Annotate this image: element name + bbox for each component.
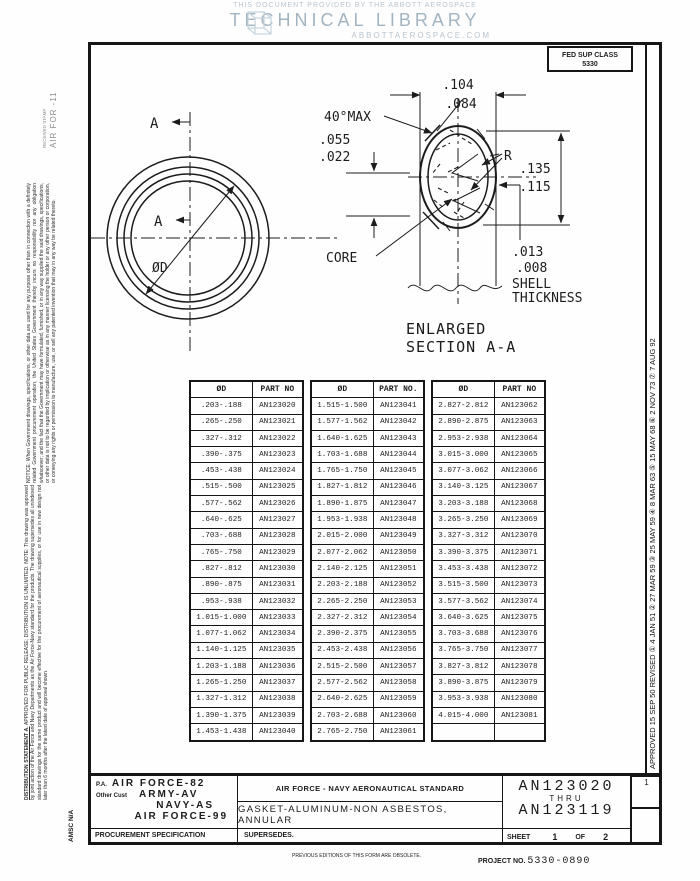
diameter-cell: 4.015-4.000 bbox=[432, 707, 494, 723]
of-label: OF bbox=[575, 834, 585, 841]
part-no-cell: AN123035 bbox=[252, 642, 303, 658]
table-row: 2.577-2.562AN123058 bbox=[311, 675, 424, 691]
part-table-group-1: ØDPART NO.203-.188AN123020.265-.250AN123… bbox=[189, 380, 304, 742]
diameter-cell: .765-.750 bbox=[190, 544, 252, 560]
diameter-cell: 2.140-2.125 bbox=[311, 561, 373, 577]
table-row: .827-.812AN123030 bbox=[190, 561, 303, 577]
table-row: .765-.750AN123029 bbox=[190, 544, 303, 560]
part-no-cell: AN123037 bbox=[252, 675, 303, 691]
table-header-row: ØDPART NO bbox=[190, 381, 303, 398]
diameter-cell: 2.890-2.875 bbox=[432, 414, 494, 430]
table-row: 1.890-1.875AN123047 bbox=[311, 496, 424, 512]
part-no-cell: AN123028 bbox=[252, 528, 303, 544]
table-row: .640-.625AN123027 bbox=[190, 512, 303, 528]
table-row: 1.953-1.938AN123048 bbox=[311, 512, 424, 528]
table-row: 1.077-1.062AN123034 bbox=[190, 626, 303, 642]
diameter-label: ØD bbox=[152, 261, 168, 276]
table-row: 3.077-3.062AN123066 bbox=[432, 463, 545, 479]
part-no-cell: AN123042 bbox=[373, 414, 424, 430]
table-row: 2.265-2.250AN123053 bbox=[311, 593, 424, 609]
table-row: 2.327-2.312AN123054 bbox=[311, 610, 424, 626]
part-table-group-3: ØDPART NO2.827-2.812AN1230622.890-2.875A… bbox=[431, 380, 546, 742]
part-no-cell: AN123077 bbox=[494, 642, 545, 658]
part-no-cell: AN123075 bbox=[494, 610, 545, 626]
part-no-cell: AN123064 bbox=[494, 430, 545, 446]
part-number-table: ØDPART NO.203-.188AN123020.265-.250AN123… bbox=[189, 380, 546, 742]
diameter-cell: 2.390-2.375 bbox=[311, 626, 373, 642]
part-no-cell: AN123063 bbox=[494, 414, 545, 430]
part-no-cell: AN123081 bbox=[494, 707, 545, 723]
table-row: 3.453-3.438AN123072 bbox=[432, 561, 545, 577]
other-cust-label: Other Cust bbox=[96, 793, 127, 799]
previous-editions-note: PREVIOUS EDITIONS OF THIS FORM ARE OBSOL… bbox=[292, 853, 421, 859]
received-stamp-small: RECEIVED STAMP bbox=[40, 53, 49, 148]
part-no-cell: AN123026 bbox=[252, 496, 303, 512]
table-row: 1.140-1.125AN123035 bbox=[190, 642, 303, 658]
table-row: 1.390-1.375AN123039 bbox=[190, 707, 303, 723]
diameter-cell: 1.515-1.500 bbox=[311, 398, 373, 414]
part-no-cell: AN123031 bbox=[252, 577, 303, 593]
table-row: 1.327-1.312AN123038 bbox=[190, 691, 303, 707]
amsc-label: AMSC N/A bbox=[68, 772, 75, 842]
part-no-cell: AN123054 bbox=[373, 610, 424, 626]
table-row: 3.827-3.812AN123078 bbox=[432, 659, 545, 675]
dim-angle: 40°MAX bbox=[324, 110, 371, 125]
table-row: 3.327-3.312AN123070 bbox=[432, 528, 545, 544]
table-row: .203-.188AN123020 bbox=[190, 398, 303, 414]
cube-logo-icon bbox=[245, 6, 275, 40]
diameter-cell: 2.765-2.750 bbox=[311, 724, 373, 741]
part-no-header: PART NO bbox=[494, 381, 545, 398]
received-stamp: RECEIVED STAMP AIR FOR -11 bbox=[40, 53, 58, 148]
table-row: 4.015-4.000AN123081 bbox=[432, 707, 545, 723]
part-range-cell: AN123020 THRU AN123119 bbox=[503, 776, 631, 829]
table-row: 1.015-1.000AN123033 bbox=[190, 610, 303, 626]
dim-right-min: .115 bbox=[519, 180, 550, 195]
part-no-cell: AN123022 bbox=[252, 430, 303, 446]
diameter-cell: 1.953-1.938 bbox=[311, 512, 373, 528]
table-row: .327-.312AN123022 bbox=[190, 430, 303, 446]
drawing-title-cell: GASKET-ALUMINUM-NON ASBESTOS, ANNULAR bbox=[238, 802, 503, 829]
part-no-cell: AN123060 bbox=[373, 707, 424, 723]
diameter-cell: 1.765-1.750 bbox=[311, 463, 373, 479]
table-row: 2.890-2.875AN123063 bbox=[432, 414, 545, 430]
diameter-cell: 3.953-3.938 bbox=[432, 691, 494, 707]
part-no-cell: AN123065 bbox=[494, 447, 545, 463]
dim-right-max: .135 bbox=[519, 162, 550, 177]
diameter-cell: .327-.312 bbox=[190, 430, 252, 446]
table-row: 2.515-2.500AN123057 bbox=[311, 659, 424, 675]
table-row: 3.765-3.750AN123077 bbox=[432, 642, 545, 658]
project-value: 5330-0890 bbox=[527, 856, 590, 867]
part-no-cell: AN123056 bbox=[373, 642, 424, 658]
diameter-cell: 1.890-1.875 bbox=[311, 496, 373, 512]
table-row: 3.890-3.875AN123079 bbox=[432, 675, 545, 691]
distribution-heading: DISTRIBUTION STATEMENT A. bbox=[24, 726, 30, 800]
part-no-cell bbox=[494, 724, 545, 741]
gasket-front-view: A A ØD bbox=[91, 112, 340, 352]
diameter-cell: 3.515-3.500 bbox=[432, 577, 494, 593]
diameter-cell: 1.390-1.375 bbox=[190, 707, 252, 723]
dim-left-max: .055 bbox=[319, 133, 350, 148]
table-row: 3.140-3.125AN123067 bbox=[432, 479, 545, 495]
diameter-cell: 3.703-3.688 bbox=[432, 626, 494, 642]
part-no-cell: AN123068 bbox=[494, 496, 545, 512]
dim-shell-max: .013 bbox=[512, 245, 543, 260]
part-no-cell: AN123039 bbox=[252, 707, 303, 723]
part-table-group-2: ØDPART NO.1.515-1.500AN1230411.577-1.562… bbox=[310, 380, 425, 742]
part-no-cell: AN123057 bbox=[373, 659, 424, 675]
diameter-cell: 1.827-1.812 bbox=[311, 479, 373, 495]
table-row: 3.577-3.562AN123074 bbox=[432, 593, 545, 609]
diameter-cell: .203-.188 bbox=[190, 398, 252, 414]
diameter-cell: 3.327-3.312 bbox=[432, 528, 494, 544]
caption-section: SECTION A-A bbox=[406, 338, 516, 356]
part-no-cell: AN123053 bbox=[373, 593, 424, 609]
diameter-header: ØD bbox=[432, 381, 494, 398]
table-row: 3.953-3.938AN123080 bbox=[432, 691, 545, 707]
received-stamp-main: AIR FOR -11 bbox=[49, 53, 58, 148]
part-no-cell: AN123076 bbox=[494, 626, 545, 642]
part-no-cell: AN123052 bbox=[373, 577, 424, 593]
table-row: 3.515-3.500AN123073 bbox=[432, 577, 545, 593]
sheet-total: 2 bbox=[603, 832, 608, 842]
table-row: 3.703-3.688AN123076 bbox=[432, 626, 545, 642]
diameter-cell: 1.077-1.062 bbox=[190, 626, 252, 642]
diameter-cell: .453-.438 bbox=[190, 463, 252, 479]
section-a-top-label: A bbox=[150, 116, 159, 132]
part-no-cell: AN123069 bbox=[494, 512, 545, 528]
supersedes-cell: SUPERSEDES. bbox=[238, 829, 503, 845]
table-row: 2.140-2.125AN123051 bbox=[311, 561, 424, 577]
diameter-cell: 1.265-1.250 bbox=[190, 675, 252, 691]
revision-number-box: 1 bbox=[631, 776, 662, 808]
diameter-cell: 2.577-2.562 bbox=[311, 675, 373, 691]
diameter-header: ØD bbox=[190, 381, 252, 398]
other-cust-2: NAVY-AS bbox=[96, 800, 232, 811]
part-no-cell: AN123072 bbox=[494, 561, 545, 577]
diameter-cell: 2.703-2.688 bbox=[311, 707, 373, 723]
table-row: 2.953-2.938AN123064 bbox=[432, 430, 545, 446]
part-no-cell: AN123051 bbox=[373, 561, 424, 577]
project-label: PROJECT NO. bbox=[478, 858, 525, 865]
diameter-cell: 3.015-3.000 bbox=[432, 447, 494, 463]
table-row: 2.765-2.750AN123061 bbox=[311, 724, 424, 741]
diameter-cell: .640-.625 bbox=[190, 512, 252, 528]
table-row: 1.203-1.188AN123036 bbox=[190, 659, 303, 675]
part-no-cell: AN123046 bbox=[373, 479, 424, 495]
pa-label: P.A. bbox=[96, 782, 107, 788]
dim-top-min: .084 bbox=[445, 97, 476, 112]
diameter-cell: 2.827-2.812 bbox=[432, 398, 494, 414]
approval-revisions: APPROVED 15 SEP 50 REVISED ① 4 JAN 51 ② … bbox=[648, 47, 657, 769]
part-no-header: PART NO bbox=[252, 381, 303, 398]
table-row: 3.265-3.250AN123069 bbox=[432, 512, 545, 528]
table-row: .453-.438AN123024 bbox=[190, 463, 303, 479]
diameter-cell: 2.203-2.188 bbox=[311, 577, 373, 593]
diameter-cell: 1.327-1.312 bbox=[190, 691, 252, 707]
revision-empty-box bbox=[631, 808, 662, 845]
table-row: 1.703-1.688AN123044 bbox=[311, 447, 424, 463]
title-block: P.A. AIR FORCE-82 Other Cust ARMY-AV NAV… bbox=[88, 773, 662, 845]
table-row: .890-.875AN123031 bbox=[190, 577, 303, 593]
table-row: 3.015-3.000AN123065 bbox=[432, 447, 545, 463]
diameter-cell: 2.077-2.062 bbox=[311, 544, 373, 560]
diameter-cell: 3.390-3.375 bbox=[432, 544, 494, 560]
table-row: 1.265-1.250AN123037 bbox=[190, 675, 303, 691]
part-no-cell: AN123045 bbox=[373, 463, 424, 479]
table-row: .390-.375AN123023 bbox=[190, 447, 303, 463]
diameter-cell: 3.077-3.062 bbox=[432, 463, 494, 479]
table-row: .953-.938AN123032 bbox=[190, 593, 303, 609]
enlarged-section-view: .104 .084 40°MAX .055 .022 R .135 .115 bbox=[319, 78, 582, 356]
part-number-from: AN123020 bbox=[503, 779, 630, 794]
part-no-cell: AN123047 bbox=[373, 496, 424, 512]
diameter-cell: .890-.875 bbox=[190, 577, 252, 593]
part-no-cell: AN123066 bbox=[494, 463, 545, 479]
other-cust-1: ARMY-AV bbox=[139, 789, 198, 800]
procurement-spec-cell: PROCUREMENT SPECIFICATION bbox=[91, 829, 238, 845]
diameter-cell: 2.265-2.250 bbox=[311, 593, 373, 609]
diameter-cell: 2.453-2.438 bbox=[311, 642, 373, 658]
diameter-cell: 1.140-1.125 bbox=[190, 642, 252, 658]
shell-word1: SHELL bbox=[512, 277, 551, 292]
sheet-label: SHEET bbox=[503, 834, 530, 841]
part-no-cell: AN123073 bbox=[494, 577, 545, 593]
sheet-cell: SHEET 1 OF 2 bbox=[503, 829, 631, 845]
diameter-cell: 3.765-3.750 bbox=[432, 642, 494, 658]
diameter-cell: 2.515-2.500 bbox=[311, 659, 373, 675]
caption-enlarged: ENLARGED bbox=[406, 320, 486, 338]
part-no-cell: AN123038 bbox=[252, 691, 303, 707]
diameter-cell: .953-.938 bbox=[190, 593, 252, 609]
diameter-cell: .703-.688 bbox=[190, 528, 252, 544]
table-row: 1.765-1.750AN123045 bbox=[311, 463, 424, 479]
part-no-cell: AN123040 bbox=[252, 724, 303, 741]
part-no-cell: AN123020 bbox=[252, 398, 303, 414]
part-no-cell: AN123070 bbox=[494, 528, 545, 544]
part-no-cell: AN123058 bbox=[373, 675, 424, 691]
diameter-cell: 1.015-1.000 bbox=[190, 610, 252, 626]
part-no-cell: AN123036 bbox=[252, 659, 303, 675]
table-row: 2.703-2.688AN123060 bbox=[311, 707, 424, 723]
table-row: 1.453-1.438AN123040 bbox=[190, 724, 303, 741]
part-no-cell: AN123025 bbox=[252, 479, 303, 495]
dim-top-max: .104 bbox=[442, 78, 473, 93]
table-row: 1.515-1.500AN123041 bbox=[311, 398, 424, 414]
diameter-cell: 1.577-1.562 bbox=[311, 414, 373, 430]
diameter-cell: 1.453-1.438 bbox=[190, 724, 252, 741]
diameter-cell: .577-.562 bbox=[190, 496, 252, 512]
table-header-row: ØDPART NO. bbox=[311, 381, 424, 398]
document-page: THIS DOCUMENT PROVIDED BY THE ABBOTT AER… bbox=[0, 0, 700, 881]
part-no-cell: AN123074 bbox=[494, 593, 545, 609]
table-row: .515-.500AN123025 bbox=[190, 479, 303, 495]
project-number: PROJECT NO. 5330-0890 bbox=[478, 856, 590, 867]
part-no-cell: AN123080 bbox=[494, 691, 545, 707]
part-no-cell: AN123044 bbox=[373, 447, 424, 463]
part-no-cell: AN123041 bbox=[373, 398, 424, 414]
part-no-cell: AN123043 bbox=[373, 430, 424, 446]
break-line bbox=[408, 285, 502, 291]
distribution-statement: DISTRIBUTION STATEMENT A. APPROVED FOR P… bbox=[24, 485, 49, 800]
diameter-cell: 1.703-1.688 bbox=[311, 447, 373, 463]
table-row: .577-.562AN123026 bbox=[190, 496, 303, 512]
diameter-cell: 3.453-3.438 bbox=[432, 561, 494, 577]
table-row: 3.390-3.375AN123071 bbox=[432, 544, 545, 560]
table-row: 1.577-1.562AN123042 bbox=[311, 414, 424, 430]
part-no-cell: AN123067 bbox=[494, 479, 545, 495]
diameter-cell: 3.265-3.250 bbox=[432, 512, 494, 528]
standard-line-cell: AIR FORCE - NAVY AERONAUTICAL STANDARD bbox=[238, 776, 503, 802]
part-no-cell: AN123062 bbox=[494, 398, 545, 414]
diameter-cell: .390-.375 bbox=[190, 447, 252, 463]
part-no-cell: AN123049 bbox=[373, 528, 424, 544]
table-row: 1.827-1.812AN123046 bbox=[311, 479, 424, 495]
dim-left-min: .022 bbox=[319, 150, 350, 165]
table-row: 3.203-3.188AN123068 bbox=[432, 496, 545, 512]
table-header-row: ØDPART NO bbox=[432, 381, 545, 398]
part-no-cell: AN123059 bbox=[373, 691, 424, 707]
part-no-cell: AN123078 bbox=[494, 659, 545, 675]
government-notice: NOTICE: When Government drawings, specif… bbox=[26, 183, 57, 483]
sheet-number: 1 bbox=[552, 832, 557, 842]
part-no-cell: AN123021 bbox=[252, 414, 303, 430]
part-number-to: AN123119 bbox=[503, 803, 630, 818]
part-no-header: PART NO. bbox=[373, 381, 424, 398]
table-row: 2.015-2.000AN123049 bbox=[311, 528, 424, 544]
procuring-activity-cell: P.A. AIR FORCE-82 Other Cust ARMY-AV NAV… bbox=[91, 776, 238, 829]
part-no-cell: AN123071 bbox=[494, 544, 545, 560]
diameter-cell: 2.015-2.000 bbox=[311, 528, 373, 544]
diameter-cell: 2.640-2.625 bbox=[311, 691, 373, 707]
table-row: 2.453-2.438AN123056 bbox=[311, 642, 424, 658]
other-cust-3: AIR FORCE-99 bbox=[96, 811, 232, 822]
table-row: .265-.250AN123021 bbox=[190, 414, 303, 430]
part-no-cell: AN123032 bbox=[252, 593, 303, 609]
diameter-cell bbox=[432, 724, 494, 741]
part-no-cell: AN123055 bbox=[373, 626, 424, 642]
diameter-cell: .515-.500 bbox=[190, 479, 252, 495]
table-row: 2.077-2.062AN123050 bbox=[311, 544, 424, 560]
core-hatching bbox=[432, 130, 472, 218]
diameter-cell: 1.203-1.188 bbox=[190, 659, 252, 675]
section-a-mid-label: A bbox=[154, 214, 163, 230]
table-row bbox=[432, 724, 545, 741]
diameter-cell: 3.577-3.562 bbox=[432, 593, 494, 609]
part-no-cell: AN123048 bbox=[373, 512, 424, 528]
part-no-cell: AN123024 bbox=[252, 463, 303, 479]
table-row: 2.640-2.625AN123059 bbox=[311, 691, 424, 707]
diameter-cell: 3.890-3.875 bbox=[432, 675, 494, 691]
part-no-cell: AN123023 bbox=[252, 447, 303, 463]
diameter-cell: 3.140-3.125 bbox=[432, 479, 494, 495]
table-row: 2.203-2.188AN123052 bbox=[311, 577, 424, 593]
shell-word2: THICKNESS bbox=[512, 291, 582, 306]
part-no-cell: AN123027 bbox=[252, 512, 303, 528]
pa-value: AIR FORCE-82 bbox=[112, 778, 205, 789]
diameter-cell: 1.640-1.625 bbox=[311, 430, 373, 446]
part-no-cell: AN123061 bbox=[373, 724, 424, 741]
diameter-cell: .265-.250 bbox=[190, 414, 252, 430]
diameter-header: ØD bbox=[311, 381, 373, 398]
core-label: CORE bbox=[326, 251, 357, 266]
diameter-cell: 3.827-3.812 bbox=[432, 659, 494, 675]
diameter-cell: .827-.812 bbox=[190, 561, 252, 577]
table-row: 1.640-1.625AN123043 bbox=[311, 430, 424, 446]
part-no-cell: AN123029 bbox=[252, 544, 303, 560]
dim-shell-min: .008 bbox=[516, 261, 547, 276]
part-no-cell: AN123033 bbox=[252, 610, 303, 626]
table-row: 2.390-2.375AN123055 bbox=[311, 626, 424, 642]
part-no-cell: AN123034 bbox=[252, 626, 303, 642]
part-no-cell: AN123079 bbox=[494, 675, 545, 691]
table-row: 2.827-2.812AN123062 bbox=[432, 398, 545, 414]
diameter-cell: 2.953-2.938 bbox=[432, 430, 494, 446]
diameter-cell: 2.327-2.312 bbox=[311, 610, 373, 626]
diameter-cell: 3.203-3.188 bbox=[432, 496, 494, 512]
part-no-cell: AN123030 bbox=[252, 561, 303, 577]
diameter-cell: 3.640-3.625 bbox=[432, 610, 494, 626]
table-row: .703-.688AN123028 bbox=[190, 528, 303, 544]
dim-radius: R bbox=[504, 149, 512, 164]
part-no-cell: AN123050 bbox=[373, 544, 424, 560]
gasket-drawing: A A ØD bbox=[88, 42, 645, 380]
table-row: 3.640-3.625AN123075 bbox=[432, 610, 545, 626]
